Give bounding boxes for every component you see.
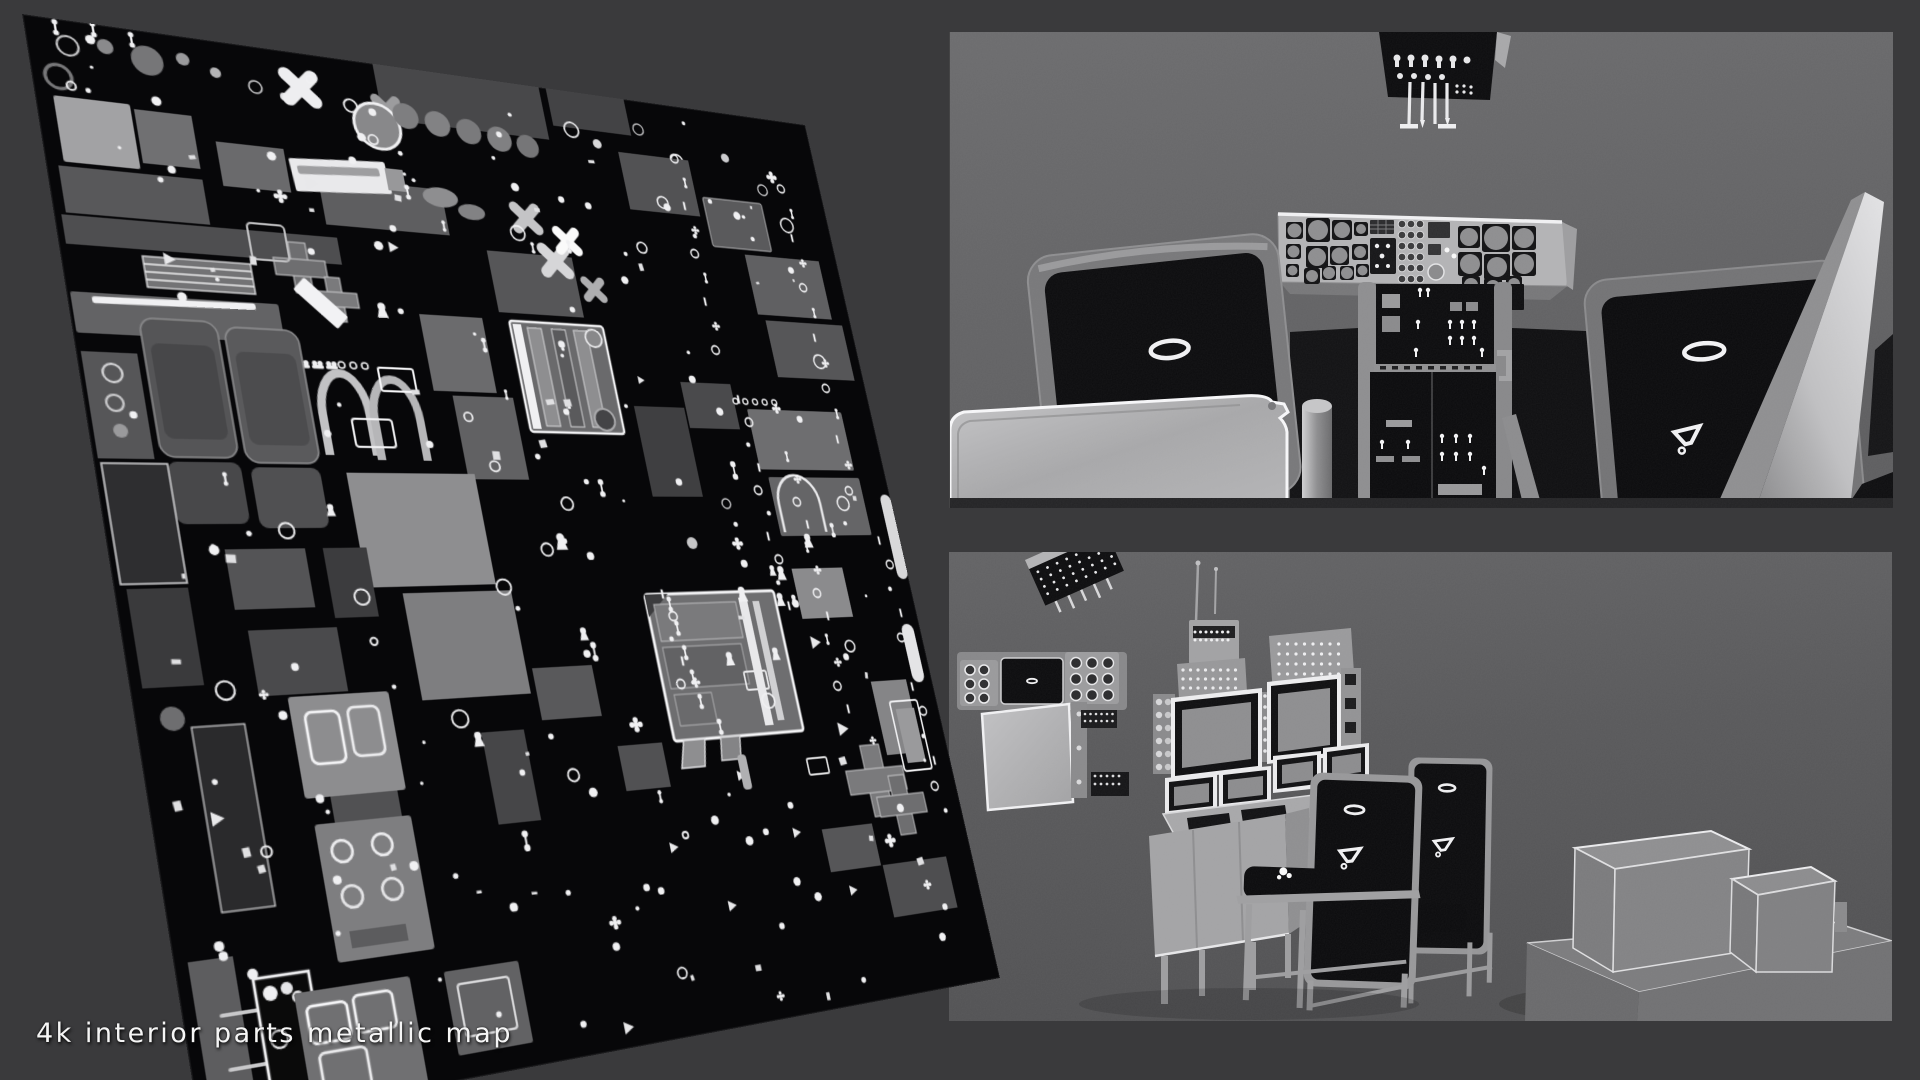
cockpit-render-image (950, 32, 1893, 508)
artstation-presentation-board: 4k interior parts metallic map (0, 0, 1920, 1080)
render-operator-station-view (949, 552, 1892, 1021)
operator-render-image (949, 552, 1892, 1021)
render-cockpit-view (949, 32, 1893, 508)
film-grain (949, 552, 1892, 1021)
metallic-map-texture-sheet (22, 14, 1000, 1080)
caption-text: 4k interior parts metallic map (36, 1018, 513, 1049)
film-grain (950, 32, 1893, 508)
uv-texture-map (22, 14, 1000, 1080)
